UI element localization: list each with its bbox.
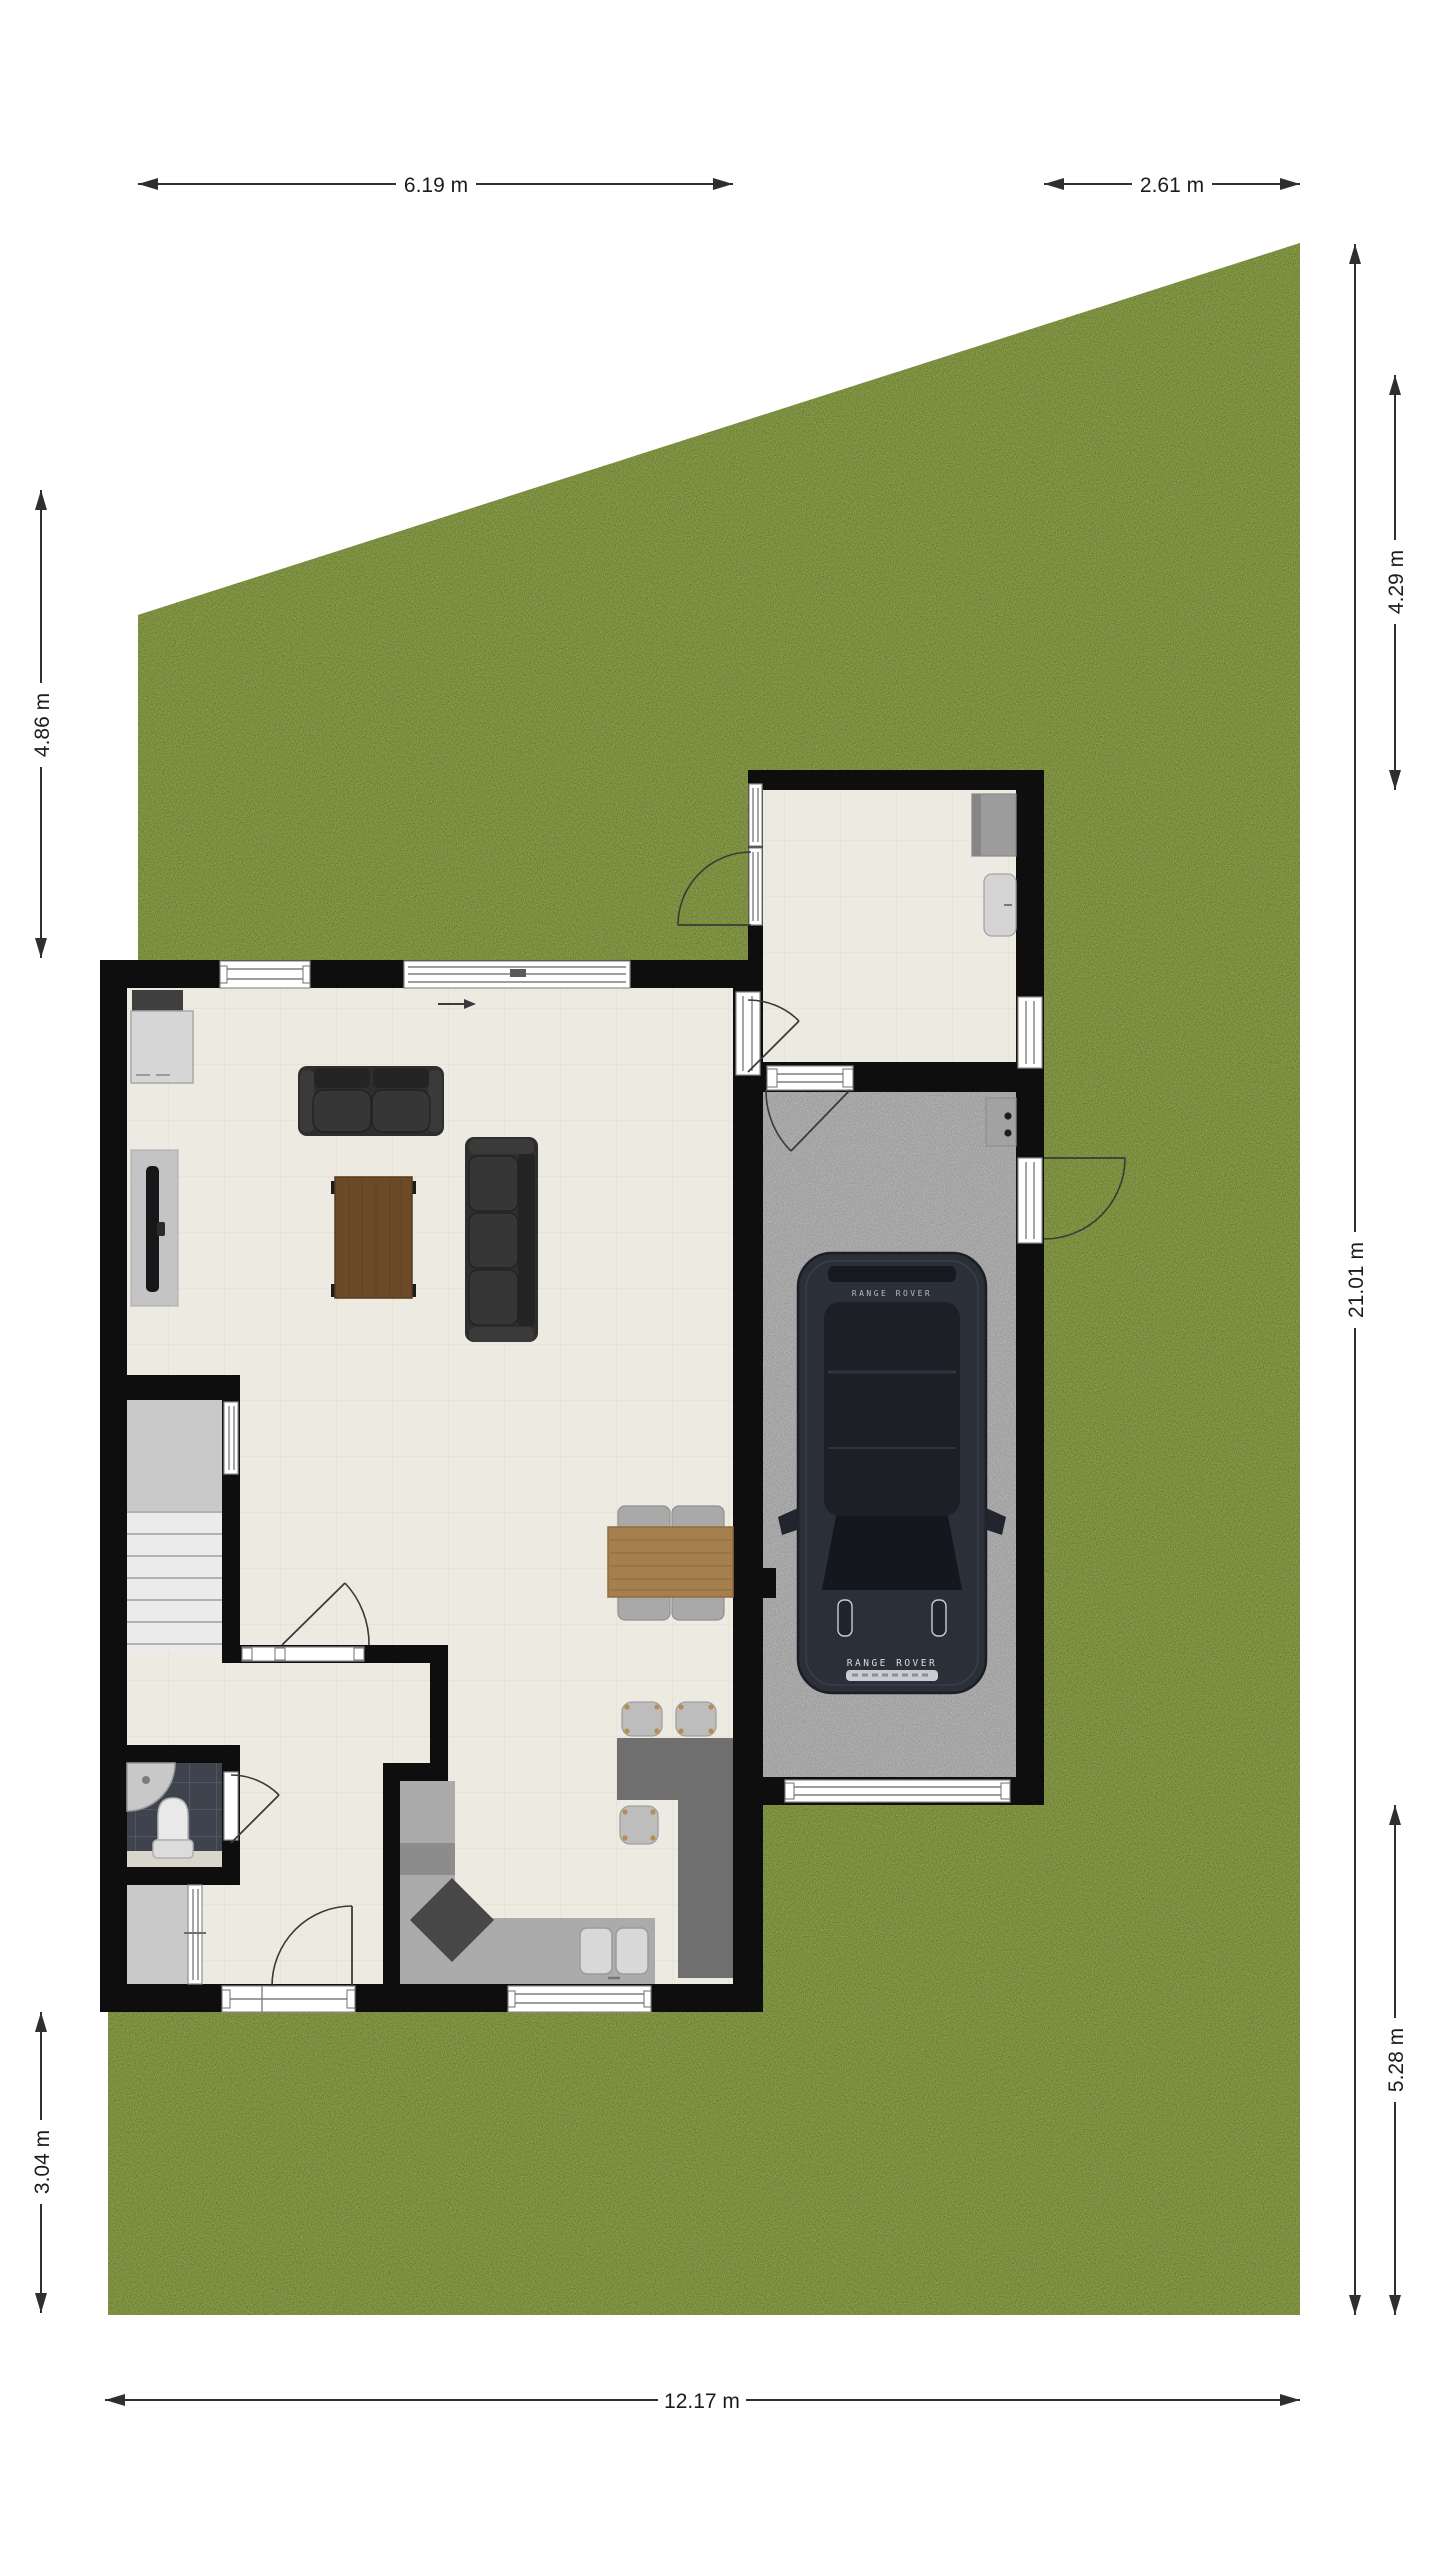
- living-window-north: [220, 961, 310, 988]
- kitchen-window-south: [508, 1986, 651, 2012]
- car: RANGE ROVER RANGE ROVER: [778, 1253, 1006, 1693]
- sideboard-dark: [132, 990, 183, 1011]
- car-roof-glass: [824, 1302, 960, 1516]
- car-brand-rear: RANGE ROVER: [852, 1289, 932, 1298]
- kitchen-wall-step: [383, 1763, 448, 1781]
- bar-stool: [676, 1702, 716, 1736]
- counter-appliance: [400, 1843, 455, 1875]
- laundry-tub: [984, 874, 1016, 936]
- utility-window-east: [1018, 997, 1042, 1068]
- garage-overhead-door: [785, 1780, 1010, 1802]
- dimension-left-upper: 4.86 m: [28, 490, 54, 958]
- utility-worktop-edge: [972, 794, 981, 856]
- dimension-top-left: 6.19 m: [138, 170, 733, 198]
- car-brand-front: RANGE ROVER: [847, 1658, 937, 1669]
- closet-door: [188, 1885, 202, 1984]
- dimension-right-total: 21.01 m: [1342, 244, 1368, 2315]
- dining-set: [608, 1506, 733, 1620]
- kitchen-wall-upper: [430, 1663, 448, 1767]
- slider-handle: [510, 969, 526, 977]
- dimension-bottom: 12.17 m: [105, 2386, 1300, 2414]
- dimension-label: 4.86 m: [31, 693, 54, 757]
- stairs: [127, 1400, 238, 1652]
- dimension-right-upper: 4.29 m: [1382, 375, 1408, 790]
- car-windshield: [822, 1516, 962, 1590]
- stair-window: [224, 1402, 238, 1474]
- floorplan-svg: 6.19 m 2.61 m 4.86 m 3.04 m: [0, 0, 1440, 2560]
- loveseat-sofa: [298, 1066, 444, 1136]
- bar-counter-side: [678, 1800, 733, 1978]
- dimension-label: 3.04 m: [31, 2130, 54, 2194]
- dining-table: [608, 1527, 733, 1597]
- tv-unit: [131, 1150, 178, 1306]
- dimension-top-right: 2.61 m: [1044, 170, 1300, 198]
- dimension-label: 6.19 m: [404, 174, 468, 197]
- bar-stool: [622, 1702, 662, 1736]
- three-seat-sofa: [465, 1137, 538, 1342]
- dimension-label: 4.29 m: [1385, 550, 1408, 614]
- shower-drain-icon: [142, 1776, 150, 1784]
- dimension-label: 2.61 m: [1140, 174, 1204, 197]
- closet: [127, 1885, 206, 1984]
- bathroom-bottom-wall: [127, 1867, 240, 1885]
- kitchen-wall-lower: [383, 1781, 400, 1984]
- closet-floor: [127, 1885, 188, 1984]
- toilet: [153, 1798, 193, 1858]
- tv-stand: [157, 1222, 165, 1236]
- dimension-right-lower: 5.28 m: [1382, 1805, 1408, 2315]
- dimension-left-lower: 3.04 m: [28, 2012, 54, 2313]
- floorplan-page: 6.19 m 2.61 m 4.86 m 3.04 m: [0, 0, 1440, 2560]
- bar-stool: [620, 1806, 658, 1844]
- stair-landing: [127, 1400, 222, 1512]
- coffee-table: [331, 1177, 416, 1298]
- car-rear-window: [828, 1266, 956, 1282]
- dimension-label: 12.17 m: [664, 2390, 740, 2413]
- dimension-label: 5.28 m: [1385, 2028, 1408, 2092]
- dimension-label: 21.01 m: [1345, 1242, 1368, 1318]
- cabinet: [131, 1011, 193, 1083]
- boiler-unit: [986, 1098, 1016, 1146]
- counter-left-upper: [400, 1781, 455, 1843]
- bar-counter-top: [617, 1738, 733, 1800]
- garage-wall-stub: [762, 1568, 776, 1598]
